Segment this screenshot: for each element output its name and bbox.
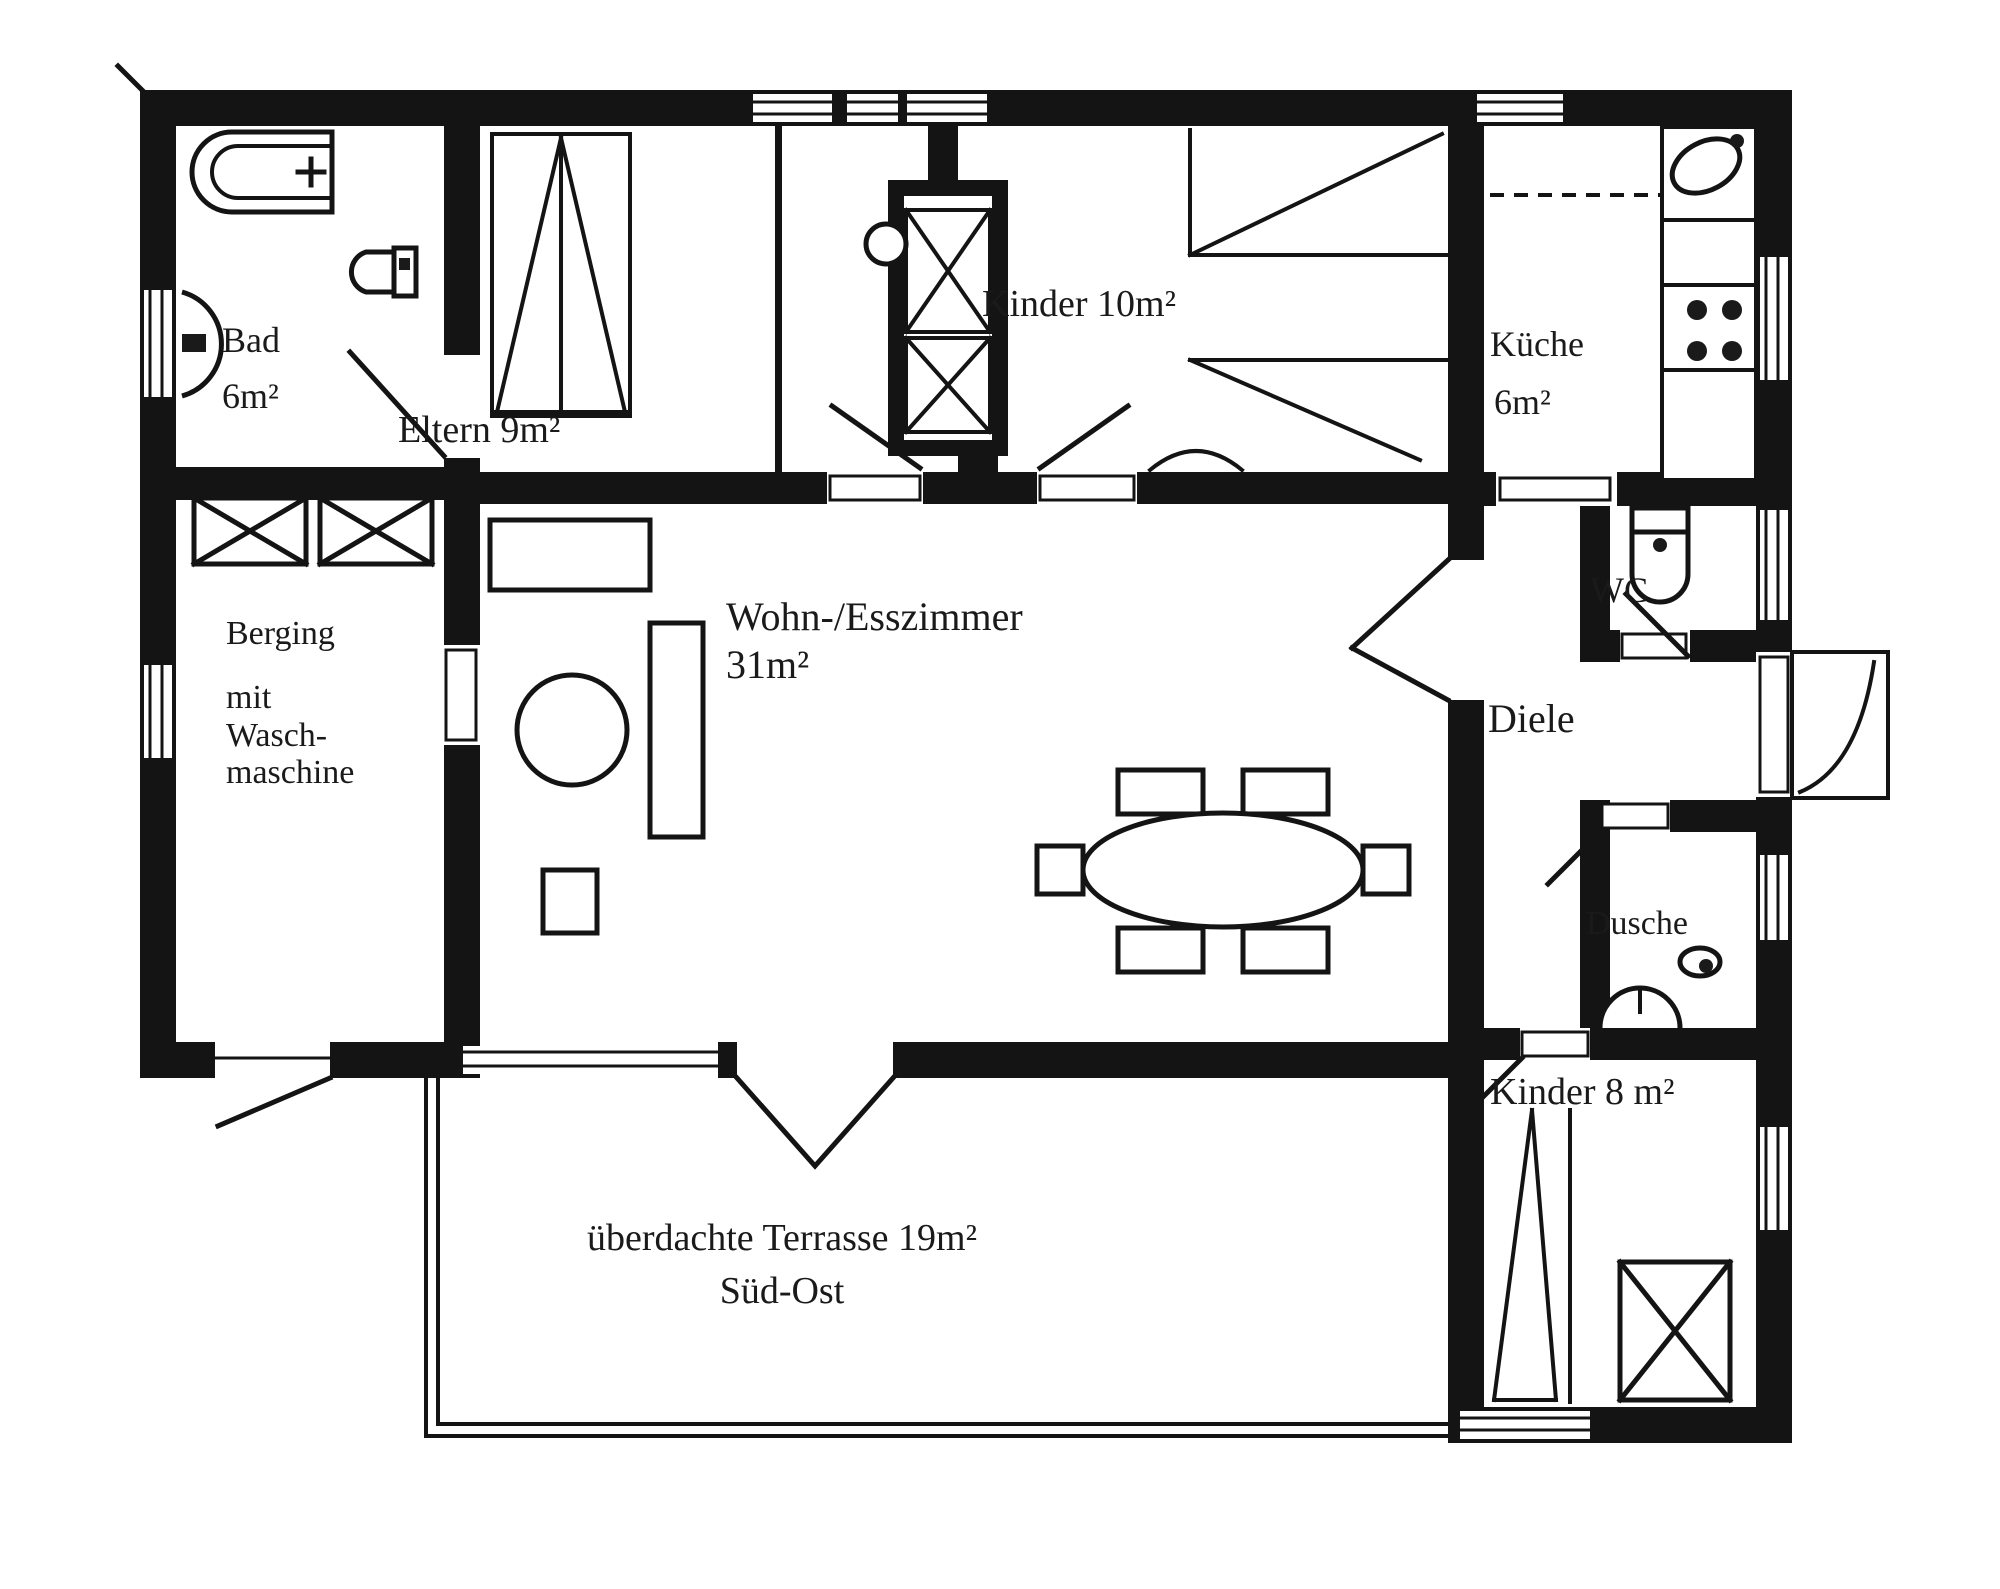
label-dusche: Dusche xyxy=(1586,905,1688,942)
window-wc-right xyxy=(1760,510,1788,620)
window-living-bottom xyxy=(463,1046,718,1074)
wall-bad-col-c xyxy=(444,745,480,1042)
eltern-wardrobe-icon xyxy=(492,134,630,416)
window-berging-left xyxy=(144,665,172,758)
dusche-door-sill xyxy=(1602,804,1668,828)
wall-wc-bottom-b xyxy=(1690,630,1756,662)
window-kinder8-bottom xyxy=(1460,1411,1590,1439)
label-bad-area: 6m² xyxy=(222,376,279,416)
window-kueche-right xyxy=(1760,257,1788,380)
label-wohnzimmer-area: 31m² xyxy=(726,642,809,687)
wardrobe-x-icon xyxy=(1620,1262,1730,1400)
dining-table-icon xyxy=(1083,813,1363,927)
label-wohnzimmer: Wohn-/Esszimmer xyxy=(726,594,1023,639)
chair-icon xyxy=(1037,846,1083,894)
berging-exit-gap xyxy=(215,1042,330,1078)
kueche-door-sill xyxy=(1500,478,1610,500)
kinder10-door-leaf xyxy=(1040,406,1128,468)
berging-door-slab xyxy=(446,650,476,740)
window-kinder8-right xyxy=(1760,1127,1788,1230)
label-kinder10: Kinder 10m² xyxy=(982,283,1176,325)
dining-set xyxy=(1037,770,1409,972)
wall-east-col-a xyxy=(1448,126,1484,560)
label-kueche: Küche xyxy=(1490,324,1584,364)
wall-bad-bottom xyxy=(176,467,444,500)
closet-x-icon xyxy=(194,498,306,564)
wall-bad-col-b xyxy=(444,458,480,645)
wall-living-bottom-b xyxy=(718,1042,737,1078)
wall-dusche-top-b xyxy=(1670,800,1756,832)
dusche-fixtures xyxy=(1600,948,1720,1028)
terrace-door-triangle xyxy=(737,1078,893,1166)
label-diele: Diele xyxy=(1488,696,1575,741)
bad-fixtures xyxy=(182,132,416,396)
label-wc: WC xyxy=(1590,570,1648,610)
kinder10-door-arc xyxy=(1150,451,1242,470)
kinder8-cabinet-icon xyxy=(1494,1110,1570,1402)
label-kueche-area: 6m² xyxy=(1494,382,1551,422)
closet-x-icon xyxy=(320,498,432,564)
wall-living-bottom-c xyxy=(893,1042,1484,1078)
wall-eltern-right xyxy=(775,126,782,472)
wall-berging-bottom-a xyxy=(140,1042,215,1078)
wall-east-col-b xyxy=(1448,700,1484,1042)
eltern-door-sill xyxy=(830,476,920,500)
chair-icon xyxy=(1363,846,1409,894)
wall-bad-col-a xyxy=(444,126,480,355)
wall-kinder8-top-b xyxy=(1590,1028,1792,1060)
label-berging-3: Wasch- xyxy=(226,717,327,754)
shower-drain-icon xyxy=(1680,948,1720,976)
chimney-stem-top xyxy=(928,126,958,184)
toilet-bad-icon xyxy=(351,248,416,296)
sideboard-icon xyxy=(490,520,650,590)
wall-left xyxy=(140,90,176,1078)
window-bad-left xyxy=(144,290,172,397)
floor-plan: Bad 6m² Eltern 9m² Kinder 10m² Küche 6m²… xyxy=(0,0,2000,1589)
label-berging-1: Berging xyxy=(226,615,335,652)
berging-exit-leaf xyxy=(218,1078,330,1126)
small-table-icon xyxy=(543,870,597,933)
window-top-1 xyxy=(753,94,832,122)
floor-plan-drawing: Bad 6m² Eltern 9m² Kinder 10m² Küche 6m²… xyxy=(0,0,2000,1589)
kinder10-closet-marks xyxy=(1190,130,1448,460)
chair-icon xyxy=(1243,770,1328,814)
diele-door-leaf-a xyxy=(1352,560,1448,648)
corner-mark xyxy=(118,66,152,100)
label-terrasse: überdachte Terrasse 19m² xyxy=(587,1217,977,1259)
entrance-door xyxy=(1760,652,1888,798)
kinder10-door-sill xyxy=(1040,476,1134,500)
label-bad: Bad xyxy=(222,320,280,360)
shelf-icon xyxy=(650,623,703,837)
label-berging-2: mit xyxy=(226,679,272,716)
window-top-2 xyxy=(847,94,898,122)
label-eltern: Eltern 9m² xyxy=(398,409,560,451)
wall-corridor-a xyxy=(480,472,827,504)
wall-living-bottom-a xyxy=(444,1042,463,1078)
label-terrasse-orientation: Süd-Ost xyxy=(720,1270,845,1312)
window-dusche-right xyxy=(1760,855,1788,940)
label-kinder8: Kinder 8 m² xyxy=(1490,1071,1674,1113)
kinder8-furniture xyxy=(1494,1110,1730,1402)
wall-kinder8-left xyxy=(1448,1028,1484,1443)
round-table-icon xyxy=(517,675,627,785)
wall-kueche-bottom-stub xyxy=(1484,472,1496,506)
entrance-door-swing xyxy=(1800,662,1874,792)
kinder8-door-sill xyxy=(1522,1032,1588,1056)
wall-wc-bottom-a xyxy=(1580,630,1620,662)
diele-door-leaf-b xyxy=(1352,648,1448,700)
window-kueche-top xyxy=(1477,94,1563,122)
boiler-icon xyxy=(866,224,906,264)
window-top-3 xyxy=(907,94,987,122)
closet-row xyxy=(194,498,432,564)
chair-icon xyxy=(1118,928,1203,972)
living-furniture xyxy=(490,520,1409,972)
washbasin-bad-icon xyxy=(182,292,221,396)
kueche-fixtures xyxy=(1490,127,1756,480)
wall-corridor-c xyxy=(1137,472,1448,504)
chair-icon xyxy=(1243,928,1328,972)
washbasin-dusche-icon xyxy=(1600,988,1680,1028)
label-berging-4: maschine xyxy=(226,754,354,791)
chair-icon xyxy=(1118,770,1203,814)
